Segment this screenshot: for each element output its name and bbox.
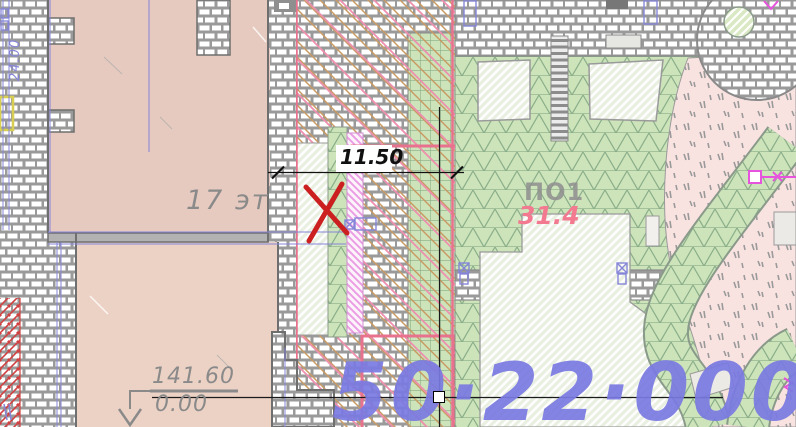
stairs xyxy=(551,36,568,141)
bench xyxy=(606,35,641,48)
wall-corner-slot xyxy=(279,3,289,9)
yellow-element xyxy=(0,97,13,130)
pier-top xyxy=(197,0,230,55)
pilaster-2 xyxy=(48,110,74,132)
vertical-dimension-label: 24.00 xyxy=(9,39,22,81)
camera-icon xyxy=(749,171,761,183)
pad-right xyxy=(774,212,796,245)
cadastral-point-marker[interactable] xyxy=(433,391,445,403)
area-value-label: 31.4 xyxy=(518,203,580,228)
entry-stub xyxy=(606,0,628,9)
cadastral-number-label: 50·22·00000 xyxy=(332,353,796,427)
pilaster-1 xyxy=(48,18,74,44)
tree-circle xyxy=(724,7,754,37)
playground-pad-1 xyxy=(478,60,530,121)
playground-pad-2 xyxy=(589,60,663,121)
pad-small xyxy=(646,216,659,246)
site-plan-viewport[interactable]: 24.00 17 эт 11.50 ПО1 31.4 141.60 0.00 5… xyxy=(0,0,796,427)
interior-wall xyxy=(48,233,268,242)
wall-right-upper xyxy=(268,0,296,242)
elevation-relative-label: 0.00 xyxy=(155,394,208,416)
width-dimension-label: 11.50 xyxy=(340,147,403,167)
floors-label: 17 эт xyxy=(186,187,270,214)
elevation-absolute-label: 141.60 xyxy=(152,366,235,388)
